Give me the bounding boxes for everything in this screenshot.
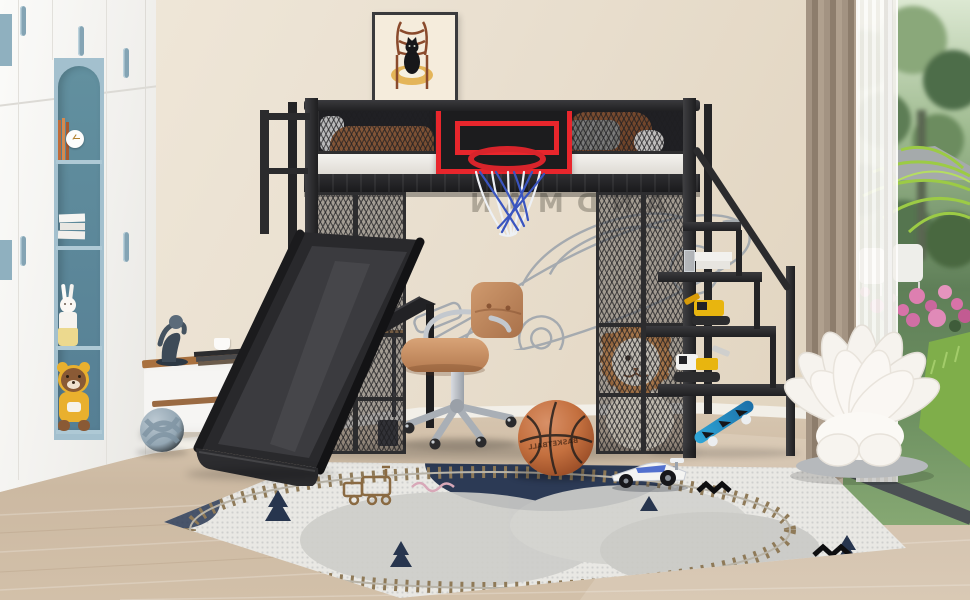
office-chair (395, 272, 525, 450)
teddy-pocket (67, 402, 81, 412)
door-seam-3 (106, 0, 107, 470)
niche-shelf-2 (56, 246, 102, 250)
stair-support (754, 281, 760, 329)
hoop-net (470, 170, 546, 238)
tree-trunk (917, 110, 926, 260)
skateboard (686, 394, 766, 450)
niche-shelf-1 (56, 160, 102, 164)
excavator-body (696, 358, 718, 370)
basketball-rim (468, 146, 546, 172)
wardrobe-blue-door-edge (0, 14, 12, 66)
niche-panel (54, 58, 104, 440)
excavator-tracks (692, 316, 730, 325)
under-bed-mesh-right (596, 192, 694, 454)
kids-room-scene: SANDMAN (0, 0, 970, 600)
door-handle (20, 6, 26, 36)
slide-shadow (186, 468, 336, 480)
knot-ball-pillow (138, 406, 186, 454)
door-handle (123, 232, 129, 262)
rabbit-doll (56, 284, 80, 346)
book-spine (62, 118, 65, 160)
white-book (59, 214, 85, 223)
stair-support (770, 336, 776, 388)
excavator-window (679, 356, 687, 364)
door-handle (78, 26, 84, 56)
white-book (58, 231, 85, 240)
glass-cup (684, 250, 695, 272)
black-cat (404, 37, 420, 74)
excavator-toy-white (668, 348, 730, 386)
door-handle (123, 48, 129, 78)
slide-rail-bar (260, 168, 308, 174)
guard-rail-mesh-right (566, 104, 692, 154)
slide-rail-bar (260, 113, 310, 120)
basketball: BASKETBALL (518, 400, 594, 476)
excavator-tracks (674, 372, 720, 382)
white-book (60, 223, 85, 230)
alarm-clock (66, 130, 84, 148)
excavator-window (697, 302, 707, 310)
white-books (696, 261, 730, 269)
door-seam-2 (52, 0, 53, 60)
cat-picture-frame (372, 12, 458, 106)
rabbit-dress (58, 328, 78, 346)
cat-on-chair-art (375, 15, 449, 97)
door-handle (20, 236, 26, 266)
excavator-toy-yellow (684, 292, 740, 328)
petal-lounge-chair (780, 322, 944, 488)
wardrobe (0, 0, 156, 497)
stair-step-1 (683, 222, 741, 231)
teddy-bear (54, 360, 94, 434)
race-car-toy (606, 450, 696, 494)
stair-step-2 (658, 272, 762, 282)
door-seam-1 (18, 0, 19, 480)
niche-shelf-3 (56, 346, 102, 350)
white-books (694, 252, 732, 261)
wardrobe-blue-door-edge-2 (0, 240, 12, 280)
book-spine (58, 120, 61, 160)
mattress-right (566, 152, 692, 176)
stair-support (736, 230, 742, 276)
